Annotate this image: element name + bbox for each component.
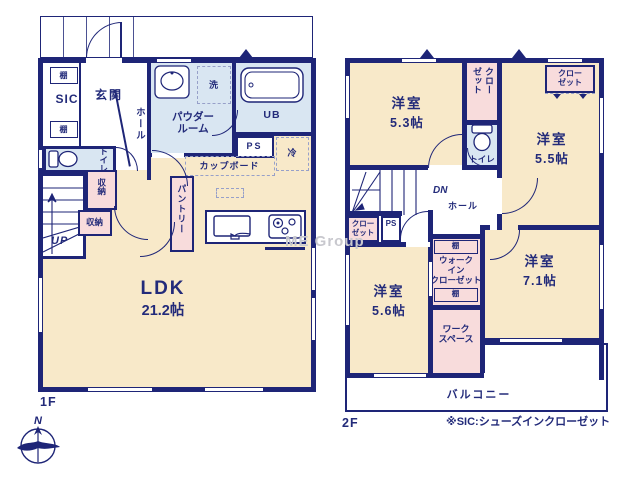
room-7-1-name: 洋室 bbox=[490, 254, 590, 270]
window bbox=[428, 262, 433, 296]
room-7-1-size: 7.1帖 bbox=[490, 274, 590, 288]
wall-segment bbox=[428, 234, 484, 239]
shelf-box: 棚 bbox=[50, 67, 78, 84]
ub-label: UB bbox=[258, 109, 286, 121]
compass-icon: N bbox=[12, 412, 64, 470]
cupboard-label: カップボード bbox=[186, 161, 273, 171]
fridge-box: 冷 bbox=[276, 137, 309, 171]
vent-mark bbox=[420, 49, 434, 58]
storage-label: 収納 bbox=[80, 218, 109, 228]
floor1-label: 1F bbox=[40, 395, 57, 409]
ps-box-1f: PS bbox=[236, 136, 274, 158]
window bbox=[88, 387, 152, 392]
room-5-3-name: 洋室 bbox=[365, 96, 449, 112]
wall-segment bbox=[553, 94, 561, 99]
window bbox=[374, 373, 426, 378]
wall-segment bbox=[480, 225, 485, 373]
window bbox=[548, 58, 582, 63]
wic-shelf-top: 棚 bbox=[434, 240, 478, 254]
shelf-label: 棚 bbox=[51, 71, 76, 80]
wall-segment bbox=[462, 58, 467, 170]
footnote: ※SIC:シューズインクローゼット bbox=[446, 416, 610, 429]
up-label: UP bbox=[51, 235, 68, 248]
ldk-label: LDK 21.2帖 bbox=[103, 278, 223, 320]
window bbox=[38, 278, 43, 332]
dashed-fixture bbox=[216, 188, 244, 198]
stairs-2f bbox=[350, 170, 428, 215]
pantry-label: パントリー bbox=[176, 184, 186, 246]
room-5-3-size: 5.3帖 bbox=[365, 116, 449, 130]
window bbox=[157, 58, 191, 63]
pantry: パントリー bbox=[170, 176, 194, 252]
window bbox=[599, 98, 604, 153]
porch-outline bbox=[40, 16, 313, 58]
unit-bath: UB bbox=[236, 63, 311, 136]
closet-5-5: クロー ゼット bbox=[545, 65, 595, 93]
balcony-label: バルコニー bbox=[437, 389, 521, 402]
door-gap bbox=[86, 58, 122, 63]
sink-icon bbox=[154, 65, 190, 99]
room-5-6-name: 洋室 bbox=[353, 284, 425, 300]
closet-5-3-label: クローゼット bbox=[469, 67, 495, 99]
dn-label: DN bbox=[433, 185, 447, 197]
wall-segment bbox=[147, 152, 151, 180]
window bbox=[345, 255, 350, 325]
hall-label: ホール bbox=[133, 107, 144, 151]
vent-mark bbox=[512, 49, 526, 58]
toilet-1f: トイレ bbox=[43, 146, 116, 173]
room-5-5-name: 洋室 bbox=[510, 132, 594, 148]
shelf-label: 棚 bbox=[435, 242, 476, 251]
window bbox=[38, 150, 43, 168]
floor2-label: 2F bbox=[342, 416, 359, 430]
storage-1: 収納 bbox=[86, 170, 117, 210]
closet-label: クロー ゼット bbox=[547, 69, 593, 87]
fridge-label: 冷 bbox=[277, 148, 307, 158]
wall-segment bbox=[120, 22, 122, 58]
shelf-label: 棚 bbox=[435, 290, 476, 299]
bathtub-icon bbox=[240, 67, 304, 103]
watermark: ME Group bbox=[285, 233, 365, 250]
room-5-6-size: 5.6帖 bbox=[353, 304, 425, 318]
sic-label: SIC bbox=[49, 93, 85, 107]
window bbox=[599, 245, 604, 309]
floor2-building: クロー ゼット PS 洋室 5.3帖 クローゼット トイレ 洋室 5.5帖 クロ… bbox=[345, 58, 608, 380]
wall-segment bbox=[428, 305, 484, 310]
storage-2: 収納 bbox=[78, 210, 112, 236]
wall-segment bbox=[579, 94, 587, 99]
laundry-label: 洗 bbox=[198, 80, 229, 90]
workspace-label: ワーク スペース bbox=[430, 324, 482, 345]
cupboard-box: カップボード bbox=[185, 156, 275, 176]
vent-mark bbox=[239, 49, 253, 58]
window bbox=[205, 387, 263, 392]
shelf-box: 棚 bbox=[50, 121, 78, 138]
wic-shelf-bottom: 棚 bbox=[434, 288, 478, 302]
wall-segment bbox=[63, 17, 64, 57]
ps-label: PS bbox=[238, 141, 271, 151]
hall-2f-label: ホール bbox=[443, 201, 483, 211]
window bbox=[311, 248, 316, 290]
door-gap bbox=[406, 242, 430, 247]
window bbox=[345, 76, 350, 118]
floor1-building: 棚 棚 SIC 玄関 ホール トイレ 洗 パウダ bbox=[38, 58, 316, 392]
storage-label: 収納 bbox=[96, 178, 106, 204]
window bbox=[402, 58, 436, 63]
shelf-label: 棚 bbox=[51, 125, 76, 134]
genkan-label: 玄関 bbox=[87, 89, 131, 103]
wall-segment bbox=[133, 17, 134, 57]
window bbox=[311, 298, 316, 340]
ps-box-2f: PS bbox=[381, 216, 401, 242]
window bbox=[500, 338, 562, 343]
floorplan-canvas: バルコニー 棚 棚 SIC 玄関 ホール トイレ bbox=[0, 0, 640, 480]
room-5-5-size: 5.5帖 bbox=[510, 152, 594, 166]
compass-north: N bbox=[34, 415, 43, 427]
wall-segment bbox=[518, 225, 604, 230]
laundry-box: 洗 bbox=[197, 66, 231, 104]
wic-label: ウォーク イン クローゼット bbox=[430, 256, 482, 285]
ps-label: PS bbox=[383, 219, 399, 228]
toilet-icon bbox=[48, 149, 82, 169]
